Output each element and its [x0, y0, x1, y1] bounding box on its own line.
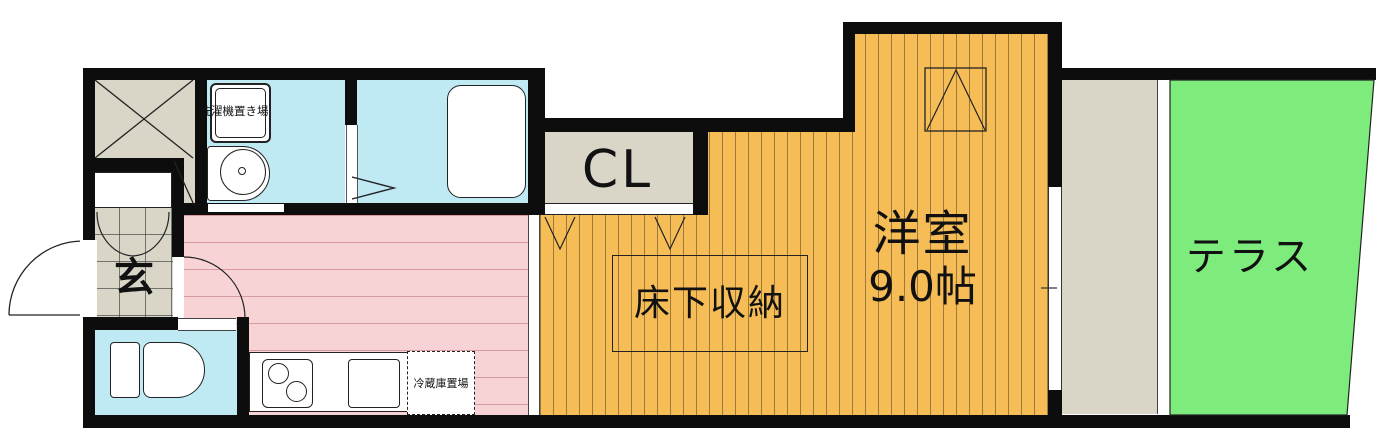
wall-top-right [843, 22, 1062, 34]
wall-closet-right [693, 118, 708, 215]
veranda-strip [1062, 80, 1158, 414]
wall-room-right-upper [1048, 22, 1062, 187]
wall-closet-top [528, 118, 855, 132]
hatched-storage-area [93, 78, 195, 160]
shoe-cabinet [93, 172, 172, 208]
toilet-tank [110, 342, 140, 398]
entry-door-swing [9, 241, 83, 315]
wall-storage-washroom [195, 68, 207, 215]
kitchen-sink [348, 359, 400, 408]
floor-plan: 冷蔵庫置場 玄 洗濯 [0, 0, 1384, 440]
wall-terrace-top [1058, 68, 1376, 80]
wall-entrance-top [93, 158, 184, 172]
toilet-door-opening [178, 318, 236, 331]
main-room-label: 洋室 [845, 208, 1000, 260]
bathroom-door [346, 125, 358, 204]
entry-door-opening [80, 240, 97, 317]
wall-top-left [83, 68, 545, 80]
entrance-label: 玄 [110, 255, 158, 301]
fridge-space: 冷蔵庫置場 [407, 351, 475, 415]
wall-toilet-right [237, 317, 249, 428]
underfloor-storage-label: 床下収納 [612, 255, 808, 352]
wall-step-vertical [843, 22, 855, 132]
main-room-threshold [528, 215, 540, 415]
wall-corridor-bottom [83, 317, 178, 330]
fridge-space-label: 冷蔵庫置場 [414, 378, 469, 389]
stove-burner-2 [286, 381, 307, 402]
washroom-door-opening [208, 204, 284, 212]
closet-label: CL [542, 140, 693, 200]
main-room-window [1048, 187, 1062, 390]
wall-bottom [83, 415, 1350, 428]
washer-label: 洗濯機置き場 [190, 103, 278, 121]
bathtub [447, 85, 526, 198]
main-room-size-label: 9.0帖 [840, 263, 1005, 311]
wash-basin-drain [238, 167, 246, 175]
toilet-bowl [143, 342, 205, 398]
wall-washroom-bath [345, 68, 357, 125]
terrace-label: テラス [1180, 233, 1320, 281]
stove-burner-1 [268, 363, 289, 384]
closet-sliding-door [542, 203, 693, 215]
